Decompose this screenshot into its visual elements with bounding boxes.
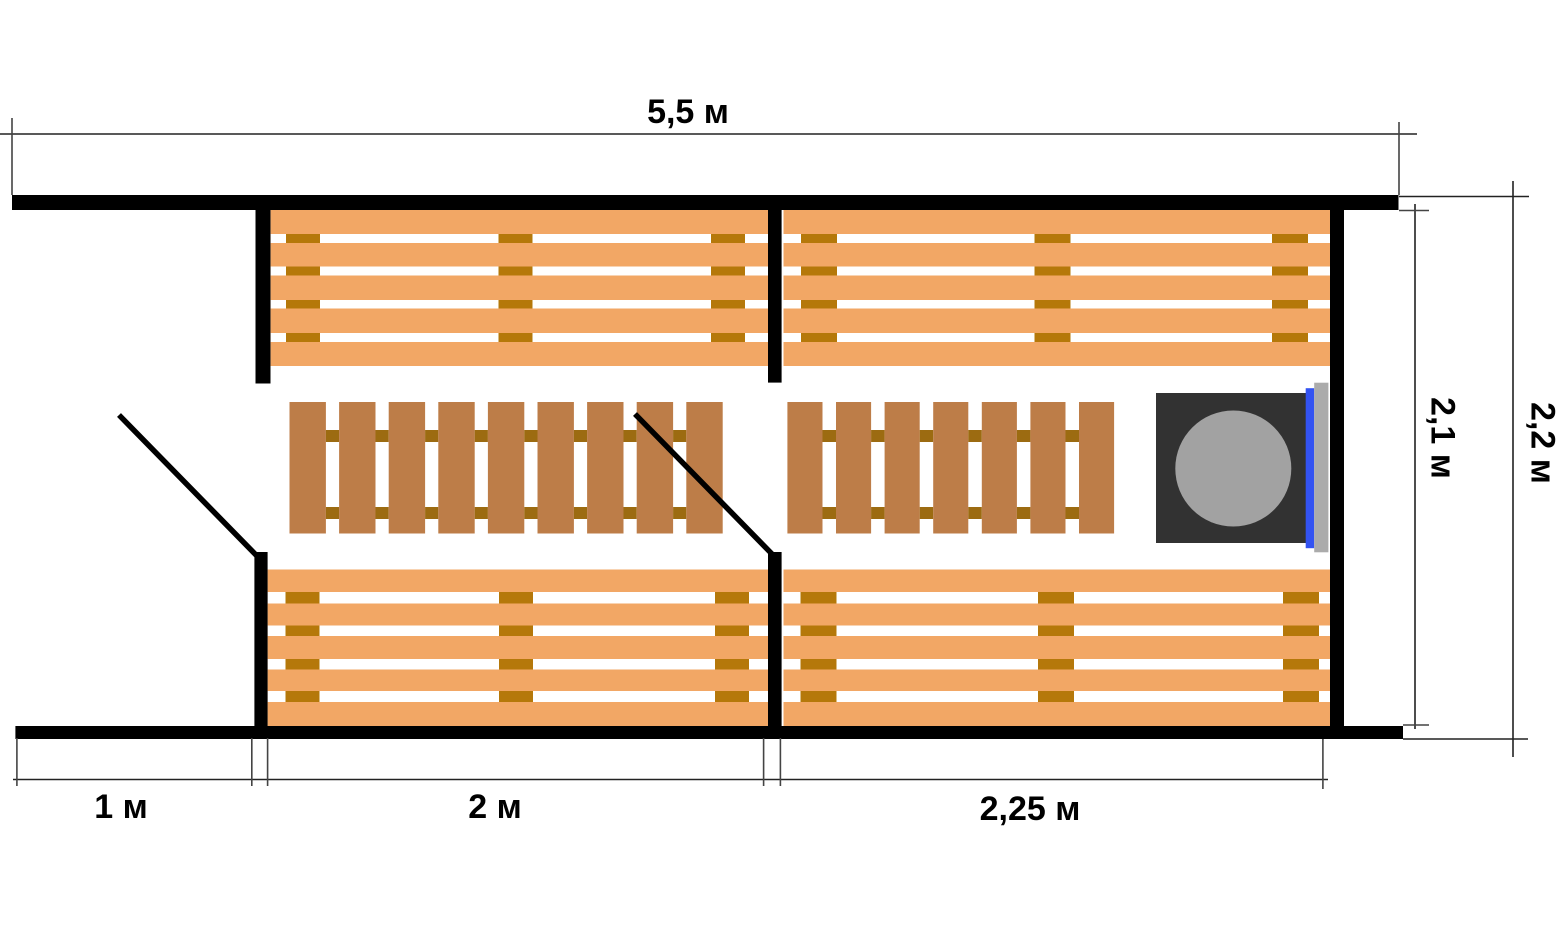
svg-text:2,25 м: 2,25 м [980, 790, 1081, 828]
svg-text:1 м: 1 м [94, 788, 148, 826]
svg-text:5,5 м: 5,5 м [647, 93, 729, 131]
svg-text:2,2 м: 2,2 м [1524, 402, 1562, 484]
svg-text:2,1 м: 2,1 м [1424, 397, 1462, 479]
svg-text:2 м: 2 м [468, 788, 522, 826]
